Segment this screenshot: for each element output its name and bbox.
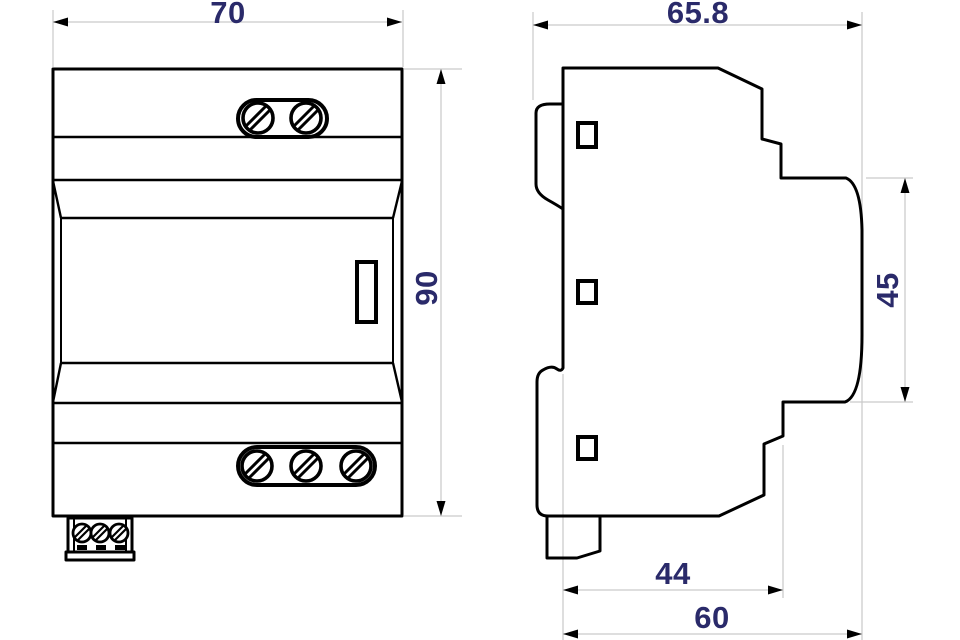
screw-icon: [110, 524, 128, 542]
side-lower-depth-dim-label: 44: [655, 556, 691, 591]
screw-icon: [73, 524, 91, 542]
screw-icon: [291, 451, 321, 481]
dimension-drawing-svg: 70 90 65.8 45 44 60: [0, 0, 960, 640]
screw-icon: [341, 451, 371, 481]
arrow-up-icon: [901, 178, 910, 193]
screw-icon: [242, 451, 272, 481]
terminal-block: [66, 518, 134, 560]
arrow-right-icon: [847, 21, 862, 30]
dimension-labels: 70 90 65.8 45 44 60: [210, 0, 905, 635]
wire-opening: [115, 545, 125, 550]
arrow-left-icon: [533, 21, 548, 30]
side-view: [536, 68, 862, 558]
arrow-right-icon: [387, 18, 402, 27]
dimension-arrows: [53, 18, 910, 639]
front-height-dim-label: 90: [409, 270, 444, 305]
arrow-left-icon: [53, 18, 68, 27]
terminal-block-lip: [66, 552, 134, 560]
screw-icon: [291, 103, 321, 133]
side-depth-dim-label: 65.8: [667, 0, 729, 30]
front-view: [53, 69, 402, 560]
wire-opening: [96, 545, 106, 550]
arrow-down-icon: [437, 501, 446, 516]
side-front-height-dim-label: 45: [870, 272, 905, 307]
rear-terminal-block-side: [547, 516, 600, 558]
screw-icon: [91, 524, 109, 542]
side-overall-depth-dim-label: 60: [694, 600, 729, 635]
side-view-dimension-lines: [533, 12, 913, 640]
rail-clip-window: [578, 281, 596, 303]
arrow-down-icon: [901, 387, 910, 402]
wire-opening: [77, 545, 87, 550]
bottom-terminal-slot: [238, 447, 375, 485]
front-width-dim-label: 70: [210, 0, 245, 30]
rail-clip-window: [578, 437, 596, 459]
top-terminal-slot: [238, 100, 327, 137]
screw-icon: [243, 103, 273, 133]
din-clip-upper: [536, 104, 563, 209]
arrow-up-icon: [437, 69, 446, 84]
technical-drawing: 70 90 65.8 45 44 60: [0, 0, 960, 640]
arrow-right-icon: [768, 586, 783, 595]
front-window-slot: [357, 262, 376, 322]
arrow-right-icon: [847, 630, 862, 639]
arrow-left-icon: [563, 586, 578, 595]
arrow-left-icon: [563, 630, 578, 639]
rail-clip-window: [578, 123, 596, 147]
